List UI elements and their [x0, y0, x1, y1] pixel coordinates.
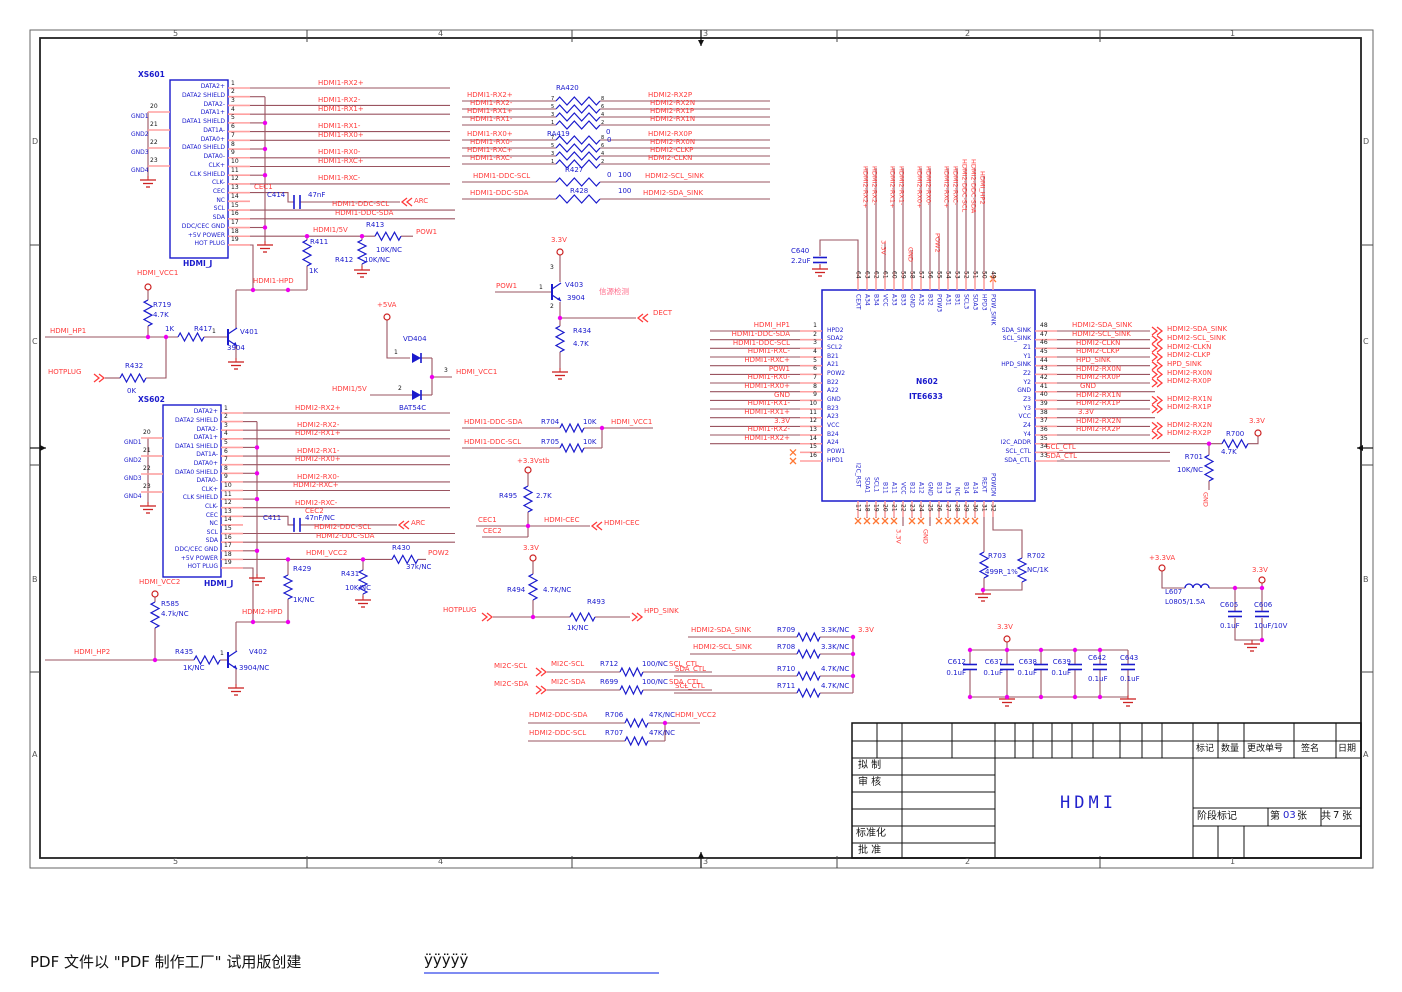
- component-label: 4.7k/NC: [161, 611, 189, 618]
- net-label: HDMI1/5V: [313, 227, 348, 234]
- no-connect-x-icon: [909, 518, 915, 524]
- net-label: HDMI2-SCL_SINK: [1167, 335, 1226, 342]
- net-label: HDMI1-RX2+: [467, 92, 513, 99]
- pin-number: 9: [231, 150, 235, 156]
- junction-dot: [164, 335, 168, 339]
- npn-transistor-icon: [233, 665, 237, 669]
- titleblock-approve: 批 准: [858, 846, 881, 856]
- pin-number: 48: [1040, 323, 1048, 329]
- net-label: GND: [1202, 492, 1209, 507]
- component-label: R432: [125, 363, 143, 370]
- pin-name: I2C_RST: [855, 463, 861, 487]
- component-label: 0.1uF: [1017, 670, 1037, 677]
- pin-name: CLK+: [209, 163, 226, 169]
- pin-name: DATA2 SHIELD: [175, 418, 218, 424]
- pin-name: SCL_CTL: [1005, 449, 1031, 455]
- resistor-symbol: [120, 374, 146, 382]
- net-label: HDMI2-DDC-SCL: [961, 159, 968, 212]
- pin-name: DATA2-: [197, 427, 218, 433]
- resistor-symbol: [797, 650, 820, 658]
- resistor-symbol: [1205, 455, 1213, 481]
- net-label: HDMI2-RX0N: [1076, 366, 1121, 373]
- component-label: C637: [985, 659, 1003, 666]
- pin-number: 13: [231, 185, 239, 191]
- resistor-symbol: [556, 121, 600, 129]
- net-label: HDMI2-RX1P: [1076, 400, 1120, 407]
- offpage-arrow-icon: [1152, 405, 1162, 413]
- junction-dot: [286, 288, 290, 292]
- array-pin-number: 1: [551, 121, 554, 126]
- net-label: HDMI1-RX2-: [318, 97, 360, 104]
- component-label: V401: [240, 329, 258, 336]
- pin-number: 46: [1040, 340, 1048, 346]
- pin-number: 11: [809, 410, 817, 416]
- pin-number: 11: [224, 492, 232, 498]
- pin-name: A33: [891, 294, 897, 306]
- pin-number: 50: [981, 271, 987, 279]
- component-label: 10uF/10V: [1254, 623, 1287, 630]
- component-label: 0.1uF: [983, 670, 1003, 677]
- net-label: HDMI2-RXC+: [943, 166, 950, 208]
- pin-number: 3: [444, 368, 448, 374]
- pin-number: 14: [809, 436, 817, 442]
- npn-transistor-icon: [552, 283, 561, 289]
- junction-dot: [531, 615, 535, 619]
- net-label: HDMI1-RX1+: [467, 108, 513, 115]
- net-label: HDMI2-RX2-: [871, 166, 878, 205]
- pin-number: 21: [143, 448, 151, 454]
- pin-number: 15: [224, 526, 232, 532]
- resistor-symbol: [529, 574, 537, 600]
- pin-number: 12: [809, 418, 817, 424]
- pin-name: +5V POWER: [188, 233, 225, 239]
- net-label: POW1: [769, 366, 790, 373]
- net-label: HDMI_VCC2: [139, 579, 180, 586]
- pin-name: NC: [209, 521, 218, 527]
- array-pin-number: 7: [551, 97, 554, 102]
- titleblock-standard: 标准化: [856, 829, 886, 839]
- footer-link[interactable]: ÿÿÿÿÿ: [424, 951, 468, 969]
- net-label: HDMI1-RX2-: [470, 100, 512, 107]
- pin-number: 58: [909, 271, 915, 279]
- resistor-symbol: [375, 232, 401, 240]
- zone-label: A: [1363, 751, 1368, 759]
- resistor-symbol: [570, 613, 595, 621]
- net-label: HDMI2-SDA_SINK: [1072, 322, 1132, 329]
- component-label: C643: [1120, 655, 1138, 662]
- pin-number: 64: [855, 271, 861, 279]
- component-label: 100/NC: [642, 679, 668, 686]
- net-label: HDMI1-RX1+: [318, 106, 364, 113]
- pin-number: 3: [550, 265, 554, 271]
- component-label: R719: [153, 302, 171, 309]
- resistor-symbol: [1222, 440, 1248, 448]
- component-label: 1K: [309, 268, 318, 275]
- npn-transistor-icon: [228, 328, 237, 334]
- pin-number: 20: [143, 430, 151, 436]
- junction-dot: [851, 674, 855, 678]
- junction-dot: [1098, 695, 1102, 699]
- pin-name: DATA0+: [194, 461, 218, 467]
- component-label: 100/NC: [642, 661, 668, 668]
- component-label: 0: [607, 137, 611, 144]
- net-label: HDMI1-DDC-SCL: [332, 201, 389, 208]
- pin-number: 8: [813, 384, 817, 390]
- pin-name: POWDN: [990, 473, 996, 496]
- net-label: HDMI2-RXC-: [952, 166, 959, 205]
- pin-number: 6: [224, 449, 228, 455]
- pin-name: A23: [827, 414, 839, 420]
- pin-number: 43: [1040, 366, 1048, 372]
- net-label: 3.3V: [858, 627, 874, 634]
- pin-number: 36: [1040, 427, 1048, 433]
- no-connect-x-icon: [918, 518, 924, 524]
- no-connect-x-icon: [891, 518, 897, 524]
- net-label: SDA_CTL: [669, 679, 700, 686]
- pin-number: 35: [1040, 436, 1048, 442]
- titleblock-change-no: 更改单号: [1247, 745, 1283, 754]
- pin-number: 51: [972, 271, 978, 279]
- pin-number: 40: [1040, 392, 1048, 398]
- net-label: POW1: [416, 229, 437, 236]
- net-label: +3.3VA: [1149, 555, 1175, 562]
- junction-dot: [1260, 638, 1264, 642]
- component-label: 10K/NC: [1177, 467, 1203, 474]
- component-label: V403: [565, 282, 583, 289]
- pin-name: Y3: [1024, 406, 1031, 412]
- component-label: VD404: [403, 336, 427, 343]
- pin-name: DDC/CEC GND: [182, 224, 225, 230]
- net-label: HDMI1-DDC-SCL: [464, 439, 521, 446]
- pin-number: 4: [813, 349, 817, 355]
- resistor-symbol: [556, 195, 600, 203]
- zone-label: D: [1363, 138, 1369, 146]
- component-label: 499R_1%: [985, 569, 1018, 576]
- zone-label: A: [32, 751, 37, 759]
- inductor-icon: [1185, 584, 1209, 588]
- component-label: R712: [600, 661, 618, 668]
- resistor-symbol: [556, 113, 600, 121]
- component-ref: ITE6633: [909, 393, 943, 401]
- pin-number: 8: [231, 142, 235, 148]
- zone-label: 2: [965, 30, 970, 38]
- component-label: 1K: [165, 326, 174, 333]
- pin-number: 37: [1040, 418, 1048, 424]
- pin-name: I2C_ADDR: [1001, 440, 1031, 446]
- net-label: HDMI2-RX1-: [297, 448, 339, 455]
- net-label: GND: [922, 529, 929, 544]
- pin-number: 30: [972, 504, 978, 512]
- pin-name: SCL: [207, 530, 218, 536]
- pin-name: GND3: [131, 150, 149, 156]
- no-connect-x-icon: [790, 458, 796, 464]
- junction-dot: [251, 288, 255, 292]
- titleblock-draft: 拟 制: [858, 761, 881, 771]
- pin-number: 7: [224, 457, 228, 463]
- net-label: HDMI2-RX0P: [1167, 378, 1211, 385]
- component-label: R709: [777, 627, 795, 634]
- pin-number: 10: [224, 483, 232, 489]
- array-pin-number: 5: [551, 105, 554, 110]
- pin-name: DATA1+: [194, 435, 218, 441]
- pin-number: 16: [231, 211, 239, 217]
- pin-name: GND4: [124, 494, 142, 500]
- resistor-symbol: [524, 486, 532, 512]
- component-label: 1K/NC: [293, 597, 315, 604]
- net-label: 3.3V: [880, 240, 887, 255]
- pin-name: SCL: [214, 206, 225, 212]
- pin-number: 1: [813, 323, 817, 329]
- net-label: HDMI1-RXC-: [748, 348, 790, 355]
- component-label: 3904: [567, 295, 585, 302]
- component-label: C411: [263, 515, 281, 522]
- component-label: C639: [1053, 659, 1071, 666]
- component-label: R710: [777, 666, 795, 673]
- net-label: HDMI2-SDA_SINK: [691, 627, 751, 634]
- pin-number: 16: [224, 535, 232, 541]
- component-ref: XS601: [138, 71, 165, 79]
- net-label: HDMI2-DDC-SCL: [314, 524, 371, 531]
- junction-dot: [1233, 586, 1237, 590]
- net-label: HDMI1/5V: [332, 386, 367, 393]
- net-label: SDA_CTL: [1046, 453, 1077, 460]
- junction-dot: [1073, 695, 1077, 699]
- component-label: 0.1uF: [1120, 676, 1140, 683]
- net-label: HDMI-CEC: [544, 517, 579, 524]
- pin-name: SCL2: [827, 345, 842, 351]
- pin-number: 29: [963, 504, 969, 512]
- component-label: 2.2uF: [791, 258, 811, 265]
- pin-number: 19: [873, 504, 879, 512]
- sheet-word: 第: [1270, 812, 1280, 822]
- pin-number: 6: [231, 124, 235, 130]
- net-label: HDMI2-HPD: [242, 609, 283, 616]
- titleblock-qty: 数量: [1221, 745, 1239, 754]
- net-label: 3.3V: [1249, 418, 1265, 425]
- component-label: 10K/NC: [376, 247, 402, 254]
- net-label: HDMI2-SCL_SINK: [645, 173, 704, 180]
- pin-name: SDA3: [972, 294, 978, 310]
- pin-number: 5: [224, 440, 228, 446]
- component-label: 4.7K: [153, 312, 169, 319]
- zone-label: C: [32, 338, 38, 346]
- net-label: HDMI2-RX1P: [650, 108, 694, 115]
- component-label: R435: [175, 649, 193, 656]
- component-label: R495: [499, 493, 517, 500]
- component-label: 47nF/NC: [305, 515, 335, 522]
- array-pin-number: 3: [551, 152, 554, 157]
- pin-number: 4: [224, 431, 228, 437]
- pin-number: 2: [813, 332, 817, 338]
- net-label: HPD_SINK: [1167, 361, 1202, 368]
- net-label: GND: [774, 392, 790, 399]
- offpage-arrow-icon: [1152, 362, 1162, 370]
- array-pin-number: 2: [601, 160, 604, 165]
- pin-number: 2: [550, 304, 554, 310]
- resistor-symbol: [144, 300, 152, 326]
- net-label: HDMI1-RX1+: [744, 409, 790, 416]
- net-label: HDMI2-RX1N: [1076, 392, 1121, 399]
- component-label: C606: [1254, 602, 1272, 609]
- array-pin-number: 7: [551, 136, 554, 141]
- net-label: HDMI2-SCL_SINK: [1072, 331, 1131, 338]
- pin-name: VCC: [900, 482, 906, 494]
- pin-number: 17: [224, 543, 232, 549]
- pin-name: GND1: [131, 114, 149, 120]
- junction-dot: [360, 234, 364, 238]
- junction-dot: [430, 375, 434, 379]
- pin-number: 45: [1040, 349, 1048, 355]
- pin-name: CEXT: [855, 294, 861, 310]
- pin-name: B24: [827, 432, 839, 438]
- pin-name: POW3: [936, 294, 942, 312]
- pin-name: DATA0 SHIELD: [175, 470, 218, 476]
- pin-number: 23: [909, 504, 915, 512]
- component-ref: HDMI_J: [204, 580, 233, 588]
- array-pin-number: 1: [551, 160, 554, 165]
- component-label: 0.1uF: [1220, 623, 1240, 630]
- junction-dot: [286, 620, 290, 624]
- component-label: 37k/NC: [406, 564, 431, 571]
- titleblock-border: [852, 723, 1361, 858]
- pin-number: 47: [1040, 332, 1048, 338]
- junction-dot: [361, 557, 365, 561]
- component-label: R711: [777, 683, 795, 690]
- net-label: HDMI2-RX2-: [297, 422, 339, 429]
- pin-number: 15: [231, 203, 239, 209]
- component-ref: N602: [916, 378, 938, 386]
- pin-name: B21: [827, 354, 839, 360]
- pin-name: B11: [882, 482, 888, 494]
- power-icon: [530, 555, 536, 561]
- offpage-arrow-icon: [536, 686, 546, 694]
- pin-name: SDA2: [827, 336, 843, 342]
- titleblock-review: 审 核: [858, 778, 881, 788]
- net-label: HDMI_VCC2: [675, 712, 716, 719]
- net-label: HDMI2-CLKN: [1167, 344, 1211, 351]
- zone-label: C: [1363, 338, 1369, 346]
- component-label: R428: [570, 188, 588, 195]
- titleblock-stage: 阶段标记: [1197, 812, 1237, 822]
- resistor-symbol: [625, 719, 648, 727]
- component-label: R413: [366, 222, 384, 229]
- pin-name: B14: [963, 482, 969, 494]
- net-label: HDMI2-RX1-: [898, 166, 905, 205]
- junction-dot: [305, 234, 309, 238]
- pin-number: 8: [224, 466, 228, 472]
- array-pin-number: 2: [601, 121, 604, 126]
- pin-name: GND2: [124, 458, 142, 464]
- component-label: R430: [392, 545, 410, 552]
- pin-name: B13: [936, 482, 942, 494]
- pin-name: SCL3: [963, 294, 969, 309]
- no-connect-x-icon: [945, 518, 951, 524]
- net-label: HDMI2-RX0+: [295, 456, 341, 463]
- no-connect-x-icon: [873, 518, 879, 524]
- net-label: SCL_CTL: [669, 661, 699, 668]
- offpage-arrow-icon: [1152, 431, 1162, 439]
- pin-number: 56: [927, 271, 933, 279]
- wire: [983, 582, 1022, 590]
- junction-dot: [251, 620, 255, 624]
- net-label: 3.3V: [523, 545, 539, 552]
- junction-dot: [263, 225, 267, 229]
- pin-number: 22: [900, 504, 906, 512]
- array-pin-number: 6: [601, 105, 604, 110]
- component-label: 0.1uF: [1051, 670, 1071, 677]
- net-label: HDMI2-SDA_SINK: [643, 190, 703, 197]
- component-label: 1K/NC: [567, 625, 589, 632]
- net-label: HDMI1-HPD: [253, 278, 294, 285]
- resistor-symbol: [178, 333, 204, 341]
- sheet-word: 张: [1297, 812, 1307, 822]
- component-ref: HDMI_J: [183, 260, 212, 268]
- pin-name: B22: [827, 380, 839, 386]
- pin-name: CEC: [206, 513, 218, 519]
- component-label: 4.7K/NC: [821, 666, 849, 673]
- net-label: GND: [1080, 383, 1096, 390]
- pin-name: GND: [909, 294, 915, 308]
- net-label: HDMI2-SDA_SINK: [1167, 326, 1227, 333]
- junction-dot: [1207, 442, 1211, 446]
- sheet-word: 张: [1342, 812, 1352, 822]
- array-pin-number: 6: [601, 144, 604, 149]
- resistor-symbol: [556, 178, 600, 186]
- net-label: POW1: [496, 283, 517, 290]
- pin-name: CLK SHIELD: [190, 172, 225, 178]
- pin-name: SCL1: [873, 477, 879, 492]
- junction-dot: [1098, 648, 1102, 652]
- pin-number: 1: [231, 81, 235, 87]
- array-pin-number: 4: [601, 152, 604, 157]
- pin-name: DDC/CEC GND: [175, 547, 218, 553]
- net-label: +5VA: [377, 302, 396, 309]
- no-connect-x-icon: [790, 449, 796, 455]
- component-label: R429: [293, 566, 311, 573]
- center-mark: [698, 40, 704, 46]
- zone-label: D: [32, 138, 38, 146]
- resistor-symbol: [284, 575, 292, 599]
- pin-name: B34: [873, 294, 879, 306]
- resistor-symbol: [625, 737, 648, 745]
- junction-dot: [981, 588, 985, 592]
- net-label: HDMI2-CLKN: [1076, 340, 1120, 347]
- pin-number: 3: [231, 98, 235, 104]
- pin-name: POW2: [827, 371, 845, 377]
- component-label: 10K: [583, 439, 597, 446]
- pin-name: HOT PLUG: [194, 241, 225, 247]
- zone-label: 3: [703, 30, 708, 38]
- zone-label: 3: [703, 858, 708, 866]
- junction-dot: [851, 635, 855, 639]
- junction-dot: [263, 121, 267, 125]
- pin-number: 32: [990, 504, 996, 512]
- pin-name: A22: [827, 388, 839, 394]
- component-label: 10K: [583, 419, 597, 426]
- pin-number: 1: [224, 406, 228, 412]
- footer-text: PDF 文件以 "PDF 制作工厂" 试用版创建: [30, 951, 301, 972]
- component-label: R412: [335, 257, 353, 264]
- component-label: R700: [1226, 431, 1244, 438]
- component-label: 2.7K: [536, 493, 552, 500]
- pin-number: 10: [809, 401, 817, 407]
- offpage-arrow-icon: [632, 613, 642, 621]
- power-icon: [525, 467, 531, 473]
- net-label: HDMI2-RX0N: [650, 139, 695, 146]
- net-label: HDMI2-RX0-: [297, 474, 339, 481]
- net-label: HDMI2-CLKP: [1076, 348, 1119, 355]
- component-label: R707: [605, 730, 623, 737]
